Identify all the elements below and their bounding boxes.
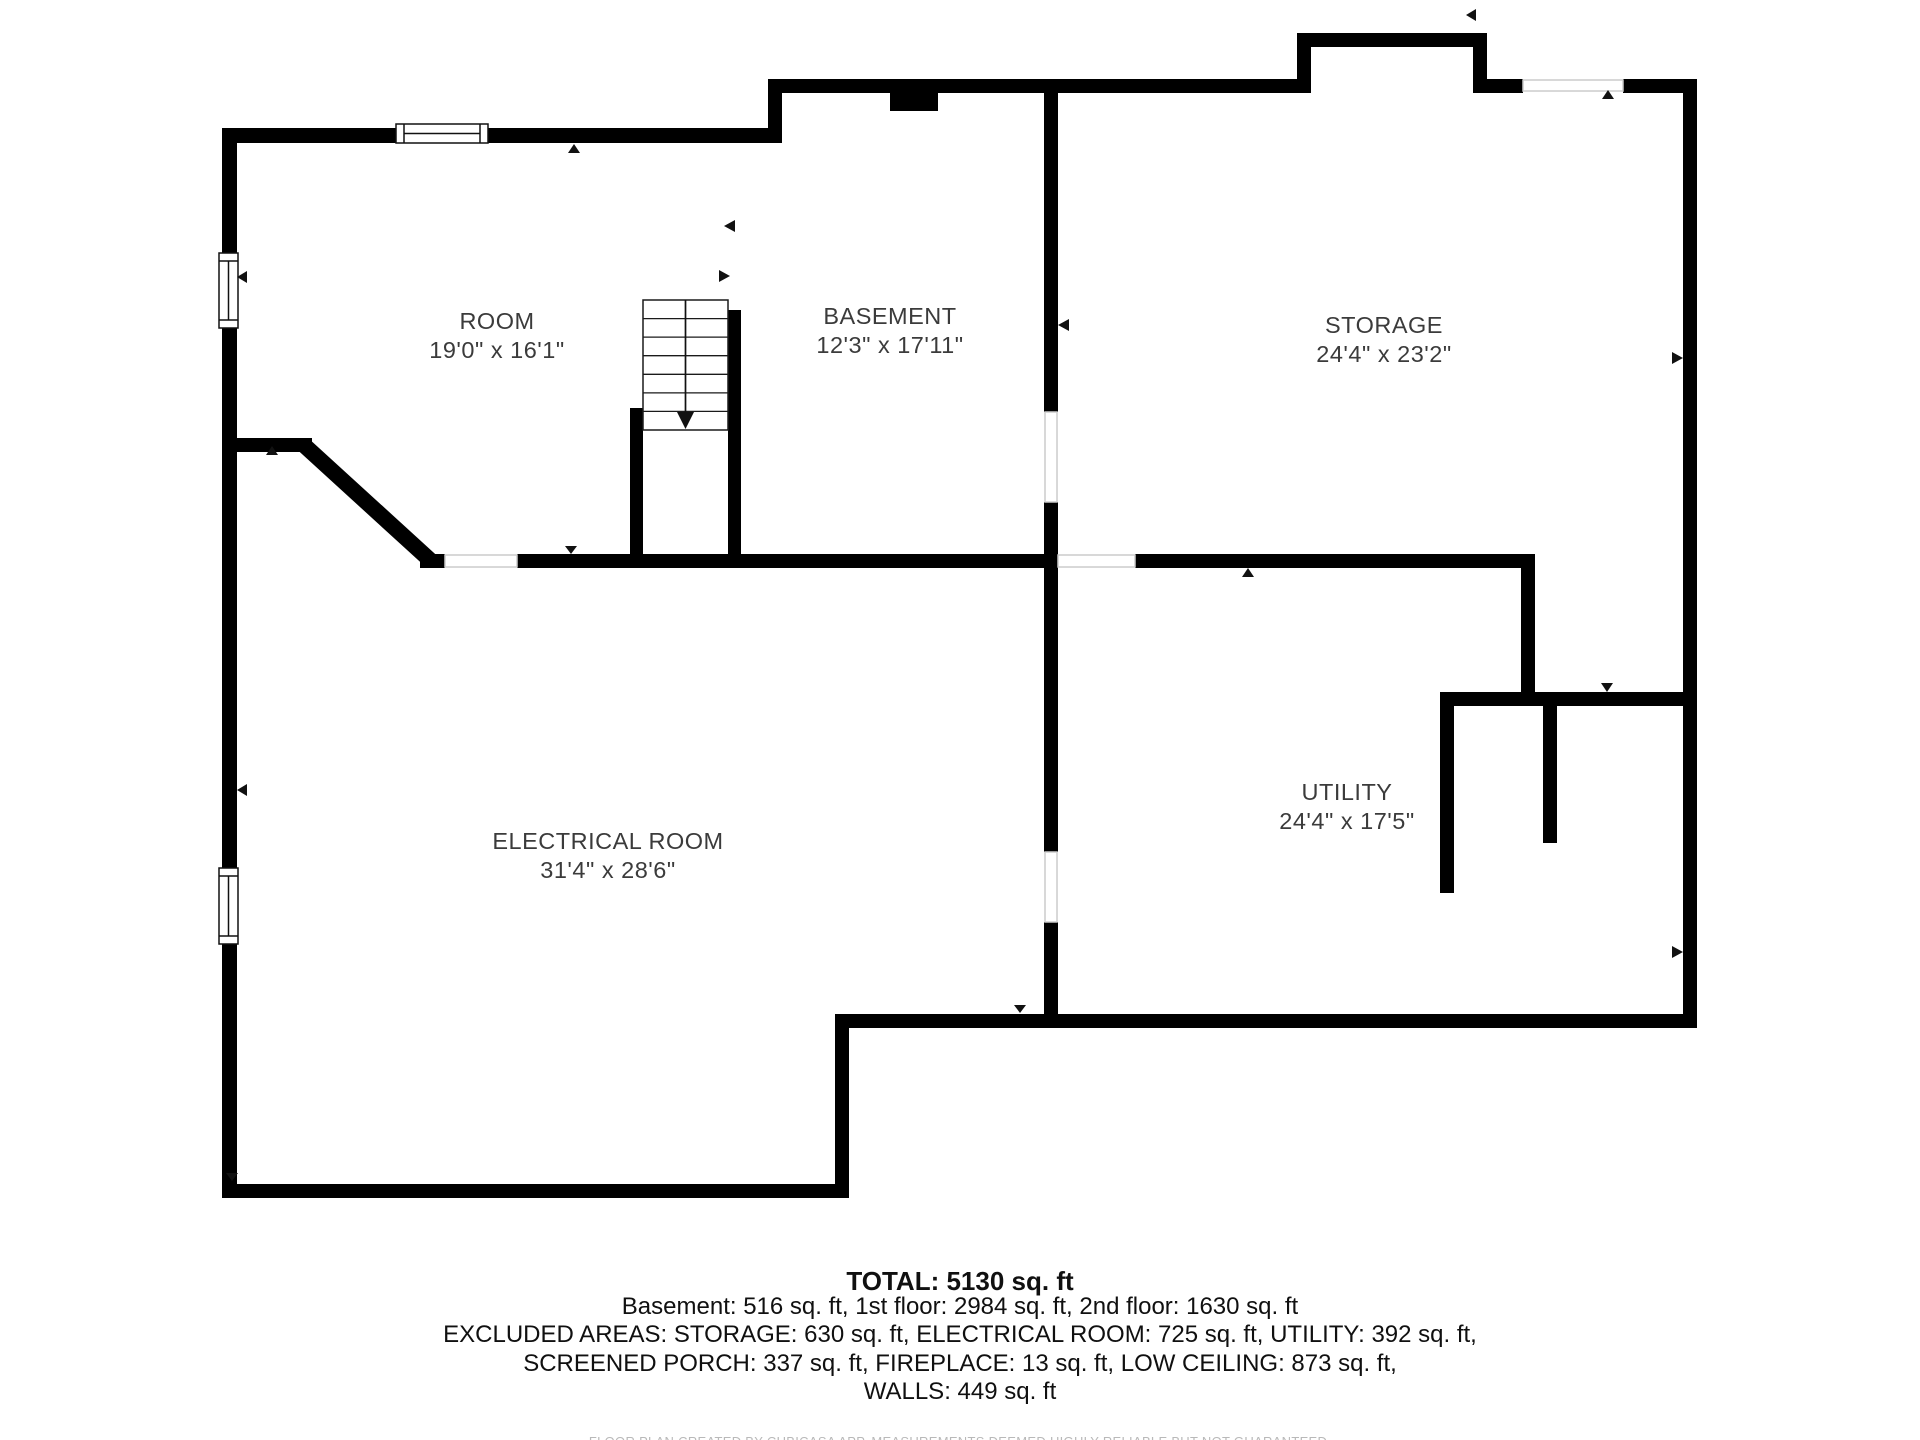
wall-diagonal	[305, 446, 431, 561]
wall-stair-left	[630, 408, 643, 568]
wall-basement-storage-upper	[1044, 93, 1058, 412]
room-dims: 12'3" x 17'11"	[816, 332, 963, 358]
excluded-areas-text-1: EXCLUDED AREAS: STORAGE: 630 sq. ft, ELE…	[0, 1321, 1920, 1349]
wall-basement-storage-lower	[1044, 502, 1058, 568]
room-name: BASEMENT	[823, 303, 956, 329]
room-name: STORAGE	[1325, 312, 1443, 338]
room-name: ROOM	[459, 308, 534, 334]
arrow-left-icon	[1058, 319, 1069, 331]
arrow-right-icon	[1672, 352, 1683, 364]
arrow-left-icon	[237, 784, 247, 796]
exterior-walls	[222, 33, 1697, 1198]
window-top	[396, 124, 488, 143]
arrow-down-icon	[1014, 1005, 1026, 1013]
arrow-down-icon	[565, 546, 577, 554]
wall-mid-main	[517, 554, 1058, 568]
wall-utility-vertical-2	[1440, 692, 1454, 893]
wall-bump-top	[1297, 33, 1487, 47]
window-left-lower	[219, 868, 238, 944]
room-name: ELECTRICAL ROOM	[492, 828, 723, 854]
wall-top-right-a	[1473, 79, 1523, 93]
opening-top-right	[1523, 80, 1623, 91]
room-labels: ROOM 19'0" x 16'1" BASEMENT 12'3" x 17'1…	[429, 303, 1451, 883]
wall-utility-vertical-1	[1521, 568, 1535, 703]
room-dims: 19'0" x 16'1"	[429, 337, 564, 363]
arrow-up-icon	[1242, 568, 1254, 577]
wall-electrical-utility-lower	[1044, 922, 1058, 1028]
wall-utility-vertical-3	[1543, 692, 1557, 843]
room-label-utility: UTILITY 24'4" x 17'5"	[1279, 779, 1414, 834]
wall-top-left	[222, 128, 782, 143]
excluded-areas-text-3: WALLS: 449 sq. ft	[0, 1378, 1920, 1406]
room-dims: 24'4" x 17'5"	[1279, 808, 1414, 834]
room-dims: 24'4" x 23'2"	[1316, 341, 1451, 367]
window-left-upper	[219, 253, 238, 328]
arrow-left-icon	[724, 220, 735, 232]
wall-utility-horizontal	[1440, 692, 1697, 706]
wall-bottom-utility	[848, 1014, 1697, 1028]
fireplace	[890, 93, 938, 111]
room-label-basement: BASEMENT 12'3" x 17'11"	[816, 303, 963, 358]
disclaimer-text: FLOOR PLAN CREATED BY CUBICASA APP. MEAS…	[0, 1434, 1920, 1440]
room-name: UTILITY	[1302, 779, 1393, 805]
wall-mid-right	[1135, 554, 1535, 568]
excluded-areas-text-2: SCREENED PORCH: 337 sq. ft, FIREPLACE: 1…	[0, 1350, 1920, 1378]
wall-right	[1683, 79, 1697, 1028]
wall-top-middle	[768, 79, 1311, 93]
arrow-down-icon	[1601, 683, 1613, 692]
room-label-room: ROOM 19'0" x 16'1"	[429, 308, 564, 363]
arrow-up-icon	[568, 144, 580, 153]
opening-utility-wall	[1045, 852, 1057, 922]
interior-walls	[222, 93, 1697, 1028]
arrow-right-icon	[1672, 946, 1683, 958]
wall-bottom-left	[222, 1184, 849, 1198]
wall-stair-right	[728, 310, 741, 568]
floor-plan-page: ROOM 19'0" x 16'1" BASEMENT 12'3" x 17'1…	[0, 0, 1920, 1440]
wall-electrical-utility-upper	[1044, 568, 1058, 852]
direction-markers	[226, 9, 1683, 1181]
floor-plan-drawing: ROOM 19'0" x 16'1" BASEMENT 12'3" x 17'1…	[0, 0, 1920, 1440]
opening-storage-wall	[1045, 412, 1057, 502]
floor-areas-text: Basement: 516 sq. ft, 1st floor: 2984 sq…	[0, 1293, 1920, 1321]
opening-mid-right	[1058, 555, 1135, 567]
room-label-electrical-room: ELECTRICAL ROOM 31'4" x 28'6"	[492, 828, 723, 883]
windows	[219, 124, 488, 944]
wall-notch	[222, 438, 312, 452]
arrow-left-icon	[1466, 9, 1476, 21]
staircase	[643, 300, 728, 430]
wall-mid-stub	[420, 554, 445, 568]
room-dims: 31'4" x 28'6"	[540, 857, 675, 883]
wall-step-bottom	[835, 1014, 849, 1198]
room-label-storage: STORAGE 24'4" x 23'2"	[1316, 312, 1451, 367]
arrow-right-icon	[719, 270, 730, 282]
opening-mid-left	[445, 555, 517, 567]
